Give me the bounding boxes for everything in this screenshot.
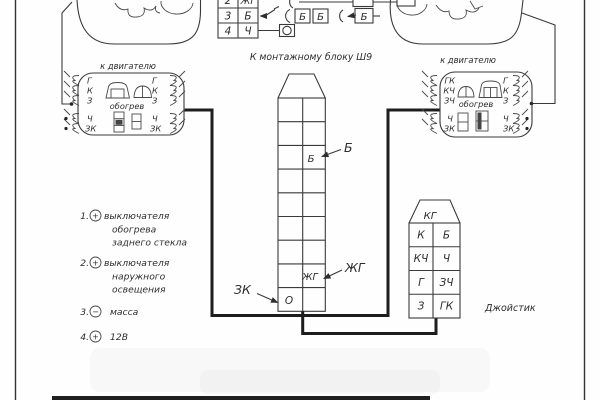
polarity-sign: +	[92, 212, 99, 221]
legend-text: заднего стекла	[112, 238, 187, 249]
mirror-icon	[134, 86, 152, 98]
right-mirror-detail	[470, 1, 483, 9]
table-cell: 3	[225, 11, 232, 23]
right-mirror-glass-arc	[397, 2, 427, 15]
switch-blade	[265, 7, 279, 17]
pin-label: З	[503, 96, 509, 106]
callout-label: ЖГ	[344, 261, 366, 275]
callout-arrow	[257, 294, 278, 303]
right-mirror-outline	[390, 0, 523, 44]
heater-element-icon	[116, 120, 123, 125]
socket-symbol	[340, 10, 343, 22]
mirror-icon	[106, 83, 130, 99]
callout-arrow	[324, 270, 342, 279]
mounting-block: К монтажному блоку Ш9 Б ЖГ О Б ЖГ ЗК	[234, 52, 372, 311]
left-mirror-wire	[62, 2, 72, 104]
pin-label: ЗК	[150, 124, 162, 134]
joystick-cell: К	[417, 230, 425, 242]
legend-text: освещения	[112, 285, 166, 296]
legend-text: обогрева	[112, 225, 157, 236]
table-cell: 2	[225, 0, 232, 7]
legend-number: 4.	[80, 332, 89, 343]
wire-box-label: Б	[317, 12, 324, 23]
right-mirror-drawing	[390, 0, 555, 105]
joystick-cell: Г	[418, 277, 425, 289]
wire-box-label: Б	[361, 12, 368, 23]
pin-label: К	[503, 86, 510, 96]
table-cell: Ч	[244, 26, 251, 38]
legend-text: выключателя	[104, 211, 170, 222]
mounting-block-title: К монтажному блоку Ш9	[250, 52, 372, 63]
pin-label: Ч	[152, 114, 158, 124]
wire-box-label: Б	[299, 12, 306, 23]
joystick-cell: ГК	[440, 301, 454, 313]
pin-hook	[170, 71, 185, 134]
block-cell: Б	[308, 154, 315, 165]
mirror-icon	[458, 87, 474, 98]
block-cell: ЖГ	[301, 272, 318, 283]
joystick-cell: ЗЧ	[440, 277, 454, 289]
table-cell: Б	[244, 11, 251, 23]
pin-label: ЗК	[444, 124, 456, 134]
wiring-diagram: 2 ЖГ 3 Б 4 Ч Б Б Б К монтажному блоку Ш9	[0, 0, 600, 400]
switch-connector-table: 2 ЖГ 3 Б 4 Ч Б Б Б	[218, 0, 415, 38]
harness-wire-u	[184, 110, 440, 316]
left-mirror-connector: к двигателю Г К З Ч ЗК Г К З Ч ЗК обогре…	[64, 61, 185, 135]
left-mirror-drawing	[62, 0, 201, 106]
junction-dot	[64, 117, 67, 120]
legend-text: наружного	[112, 272, 166, 283]
joystick-cell: З	[418, 301, 425, 313]
left-mirror-glass-arc	[161, 1, 193, 14]
block-cell: О	[285, 295, 293, 307]
pin-label: З	[87, 96, 93, 106]
heater-label: обогрев	[110, 101, 145, 111]
wire-box	[353, 0, 373, 7]
polarity-sign: −	[92, 308, 99, 317]
legend-number: 3.	[80, 307, 89, 318]
pin-label: ЗК	[85, 124, 97, 134]
joystick-cell: Б	[443, 230, 450, 242]
connector-title: к двигателю	[100, 61, 156, 71]
right-mirror-detail	[436, 5, 479, 19]
callout-label: ЗК	[234, 282, 252, 297]
pin-label: Ч	[503, 114, 509, 124]
wire-box	[397, 0, 415, 6]
socket-symbol	[290, 0, 293, 8]
pin-label: Г	[152, 76, 158, 86]
junction-dot	[64, 127, 67, 130]
pin-label: К	[87, 86, 94, 96]
joystick-connector-label: КГ	[424, 211, 438, 222]
joystick-caption: Джойстик	[484, 303, 536, 314]
legend-text: масса	[110, 307, 139, 318]
legend: 1. + выключателя обогрева заднего стекла…	[80, 210, 187, 343]
junction-dot	[525, 117, 528, 120]
legend-number: 2.	[80, 258, 89, 269]
lamp-icon	[283, 26, 291, 34]
pin-label: ЗЧ	[444, 96, 455, 106]
callout-label: Б	[344, 140, 353, 155]
pin-label: Ч	[87, 114, 93, 124]
pin-label: Г	[503, 76, 509, 86]
table-cell: 4	[225, 26, 232, 38]
page-border-bottom	[52, 396, 430, 400]
pin-label: ЗК	[503, 124, 515, 134]
legend-number: 1.	[80, 211, 89, 222]
pin-hook	[422, 71, 437, 134]
block-key-trapezoid	[278, 74, 325, 98]
table-cell: ЖГ	[240, 0, 257, 7]
pin-label: К	[152, 86, 159, 96]
joystick-cell: Ч	[443, 253, 450, 265]
pin-hook	[513, 71, 528, 134]
scanned-page: 2 ЖГ 3 Б 4 Ч Б Б Б К монтажному блоку Ш9	[0, 0, 600, 400]
joystick-cell: КЧ	[414, 253, 429, 265]
left-mirror-outline	[77, 0, 201, 44]
legend-text: 12В	[110, 332, 128, 343]
right-mirror-wire	[522, 13, 555, 104]
pin-label: КЧ	[443, 86, 455, 96]
mirror-icon-glass	[111, 89, 124, 98]
connector-title: к двигателю	[440, 55, 496, 65]
polarity-sign: +	[92, 333, 99, 342]
pin-label: З	[152, 96, 158, 106]
scan-noise	[200, 370, 440, 394]
heater-label: обогрев	[459, 99, 494, 109]
polarity-sign: +	[92, 259, 99, 268]
right-mirror-connector: к двигателю ГК КЧ ЗЧ Ч ЗК Г К З Ч ЗК обо…	[422, 55, 532, 137]
joystick-connector: КГ К Б КЧ Ч Г ЗЧ З ГК Джойстик	[409, 200, 536, 318]
legend-text: выключателя	[104, 258, 170, 269]
pin-label: ГК	[444, 76, 456, 86]
pin-label: Ч	[447, 114, 453, 124]
socket-symbol	[286, 10, 290, 23]
junction-dot	[70, 102, 74, 106]
left-mirror-detail	[115, 3, 160, 17]
pin-label: Г	[87, 76, 93, 86]
junction-dot	[525, 127, 528, 130]
